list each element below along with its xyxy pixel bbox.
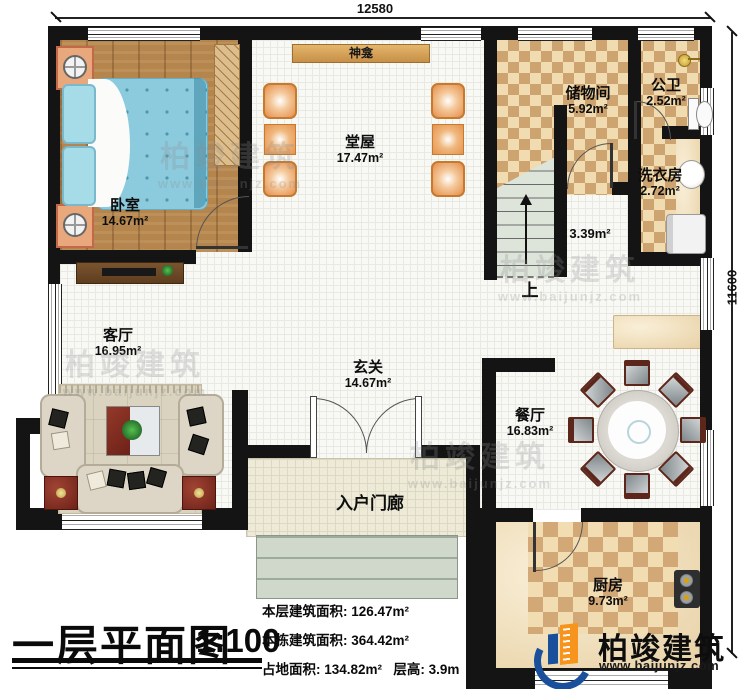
stat-label: 占地面积: (262, 662, 321, 677)
room-label-porch: 入户门廊 (300, 495, 440, 514)
laundry-name: 洗衣房 (626, 168, 694, 185)
hall-name: 堂屋 (320, 135, 400, 152)
end-table-inlay (194, 488, 204, 498)
logo-building-icon (560, 623, 578, 665)
dining-name: 餐厅 (490, 408, 570, 425)
living-name: 客厅 (78, 328, 158, 345)
hall-chair (431, 161, 465, 197)
cushion (127, 471, 146, 490)
hall-side-table (432, 124, 464, 155)
stat-value: 134.82m² (324, 662, 382, 677)
storage-area: 5.92m² (548, 103, 628, 117)
burner-icon (680, 591, 693, 604)
stat-label: 本层建筑面积: (262, 604, 348, 619)
cushion (51, 431, 70, 450)
storage-door-leaf (610, 143, 613, 188)
bathroom-name: 公卫 (634, 78, 698, 95)
logo-building-icon (548, 633, 558, 664)
stairwell-area: 3.39m² (558, 226, 622, 241)
dimension-right-line (731, 32, 733, 654)
wall (482, 372, 496, 508)
porch-steps (256, 535, 458, 599)
stat-label: 层高: (393, 662, 425, 677)
room-label-laundry: 洗衣房 2.72m² (626, 168, 694, 198)
wall (628, 137, 641, 266)
brand-logo (534, 620, 594, 682)
foyer-area: 14.67m² (328, 377, 408, 391)
bedroom-door-leaf (196, 246, 248, 249)
dining-counter (613, 315, 702, 349)
wall (420, 445, 468, 458)
entry-door-leaf (415, 396, 422, 458)
brand-url: www.baijunjz.com (599, 658, 719, 673)
dining-chair (680, 417, 706, 443)
hall-chair (431, 83, 465, 119)
pillow (62, 84, 96, 144)
burner-icon (680, 574, 693, 587)
window (421, 27, 481, 41)
window (700, 258, 714, 330)
window (518, 27, 592, 41)
bed-edge (194, 78, 206, 208)
stat-label: 本栋建筑面积: (262, 633, 348, 648)
hall-area: 17.47m² (320, 152, 400, 166)
porch-name: 入户门廊 (300, 495, 440, 514)
room-label-storage: 储物间 5.92m² (548, 86, 628, 116)
shrine-table: 神龛 (292, 44, 430, 63)
dining-table-center (627, 420, 651, 444)
stairs-arrow-head (520, 194, 532, 205)
dining-area: 16.83m² (490, 425, 570, 439)
room-label-bathroom: 公卫 2.52m² (634, 78, 698, 108)
room-label-bedroom: 卧室 14.67m² (85, 198, 165, 228)
wall (484, 40, 497, 280)
tv (102, 268, 156, 276)
wall (554, 105, 567, 277)
lamp-icon (63, 213, 87, 237)
shower-arm (688, 58, 700, 60)
wall (581, 508, 700, 522)
stat-value: 3.9m (429, 662, 460, 677)
title-underline (12, 658, 262, 663)
hall-chair (263, 161, 297, 197)
shrine-label: 神龛 (349, 46, 373, 60)
kitchen-name: 厨房 (568, 578, 648, 595)
plant (122, 420, 142, 440)
washing-machine (666, 214, 706, 254)
kitchen-area: 9.73m² (568, 595, 648, 609)
stairs-up-label: 上 (516, 276, 544, 301)
stat-building-area: 本栋建筑面积: 364.42m² (262, 629, 492, 649)
room-label-kitchen: 厨房 9.73m² (568, 578, 648, 608)
room-label-hall: 堂屋 17.47m² (320, 135, 400, 165)
stat-floor-area: 本层建筑面积: 126.47m² (262, 600, 492, 620)
entry-door-leaf (310, 396, 317, 458)
wall (482, 358, 555, 372)
cushion (186, 406, 206, 426)
lamp-icon (63, 55, 87, 79)
storage-name: 储物间 (548, 86, 628, 103)
room-label-living: 客厅 16.95m² (78, 328, 158, 358)
stats-block: 本层建筑面积: 126.47m² 本栋建筑面积: 364.42m² 占地面积: … (262, 600, 492, 678)
bedroom-name: 卧室 (85, 198, 165, 215)
plant (162, 265, 173, 276)
window (88, 27, 200, 41)
bedroom-area: 14.67m² (85, 215, 165, 229)
wardrobe (214, 44, 240, 166)
wall (232, 390, 248, 530)
bathroom-area: 2.52m² (634, 95, 698, 109)
stairs-arrow-line (525, 204, 527, 264)
dimension-right: 11600 (725, 258, 740, 318)
cushion (107, 469, 127, 489)
dining-chair (624, 473, 650, 499)
foyer-name: 玄关 (328, 360, 408, 377)
shower-head-icon (678, 54, 691, 67)
kitchen-door-leaf (533, 522, 536, 572)
window (638, 27, 694, 41)
room-label-foyer: 玄关 14.67m² (328, 360, 408, 390)
stat-value: 126.47m² (351, 604, 409, 619)
dimension-top-line (55, 17, 711, 19)
pillow (62, 146, 96, 206)
dining-chair (568, 417, 594, 443)
room-label-dining: 餐厅 16.83m² (490, 408, 570, 438)
living-area: 16.95m² (78, 345, 158, 359)
hall-chair (263, 83, 297, 119)
stat-value: 364.42m² (351, 633, 409, 648)
end-table (44, 476, 78, 510)
laundry-area: 2.72m² (626, 185, 694, 199)
toilet-bowl (696, 101, 713, 128)
stove (674, 570, 700, 608)
dining-chair (624, 360, 650, 386)
title-underline-thin (12, 667, 262, 669)
floor-plan-canvas: 12580 11600 (0, 0, 750, 689)
end-table-inlay (56, 488, 66, 498)
stat-footprint-height: 占地面积: 134.82m² 层高: 3.9m (262, 658, 492, 678)
end-table (182, 476, 216, 510)
wall (246, 445, 310, 458)
dimension-top: 12580 (330, 1, 420, 16)
hall-side-table (264, 124, 296, 155)
